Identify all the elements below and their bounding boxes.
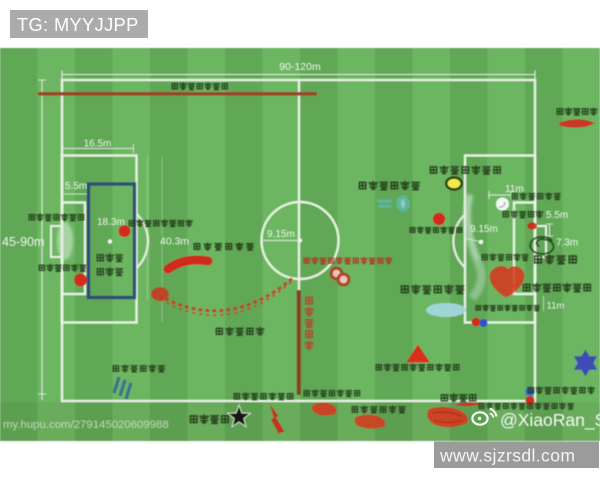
svg-text:7.3m: 7.3m <box>556 238 578 249</box>
svg-text:40.3m: 40.3m <box>160 236 189 248</box>
svg-text:@XiaoRan_S: @XiaoRan_S <box>500 410 600 431</box>
svg-text:9.15m: 9.15m <box>267 229 295 240</box>
svg-text:16.5m: 16.5m <box>84 139 112 150</box>
svg-text:45-90m: 45-90m <box>2 235 44 249</box>
svg-text:TG: MYYJJPP: TG: MYYJJPP <box>17 15 139 35</box>
svg-text:5.5m: 5.5m <box>546 210 568 221</box>
svg-text:18.3m: 18.3m <box>97 217 125 228</box>
svg-text:9.15m: 9.15m <box>470 224 498 235</box>
svg-text:5.5m: 5.5m <box>65 181 87 192</box>
svg-text:90-120m: 90-120m <box>279 61 321 73</box>
svg-text:www.sjzrsdl.com: www.sjzrsdl.com <box>439 446 575 466</box>
svg-text:my.hupu.com/279145020609988: my.hupu.com/279145020609988 <box>3 419 169 431</box>
svg-text:11m: 11m <box>547 301 565 312</box>
